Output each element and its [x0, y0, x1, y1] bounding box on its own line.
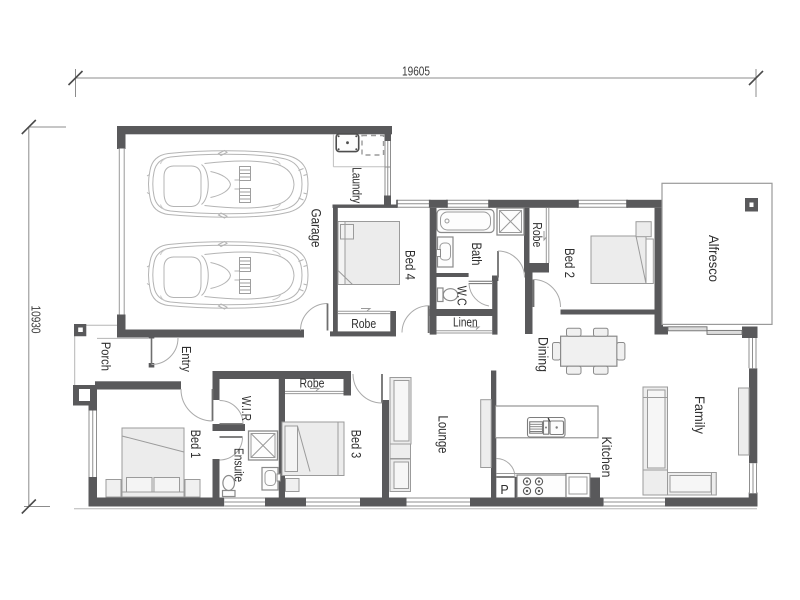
svg-text:Dining: Dining [535, 337, 550, 372]
svg-text:Laundry: Laundry [350, 167, 364, 204]
svg-text:Alfresco: Alfresco [706, 235, 721, 282]
svg-text:Robe: Robe [530, 222, 544, 247]
svg-text:Family: Family [692, 396, 707, 434]
svg-text:Bed 4: Bed 4 [402, 250, 417, 280]
svg-text:19605: 19605 [402, 64, 430, 79]
svg-text:Bath: Bath [469, 243, 484, 266]
svg-text:W.C: W.C [455, 286, 469, 306]
svg-text:10930: 10930 [28, 306, 43, 334]
svg-text:W.I.R: W.I.R [239, 396, 253, 421]
svg-text:Bed 1: Bed 1 [188, 430, 203, 459]
svg-text:Porch: Porch [99, 342, 113, 371]
svg-text:Entry: Entry [179, 346, 193, 373]
svg-text:Lounge: Lounge [435, 416, 450, 454]
svg-text:Kitchen: Kitchen [599, 437, 614, 478]
svg-text:Bed 2: Bed 2 [562, 248, 577, 278]
svg-text:Ensuite: Ensuite [232, 448, 246, 482]
svg-text:P: P [500, 483, 508, 497]
svg-text:Robe: Robe [351, 317, 376, 331]
svg-text:Bed 3: Bed 3 [348, 430, 363, 459]
svg-text:Garage: Garage [308, 209, 323, 248]
svg-text:Linen: Linen [453, 316, 478, 330]
svg-text:Robe: Robe [300, 377, 325, 391]
